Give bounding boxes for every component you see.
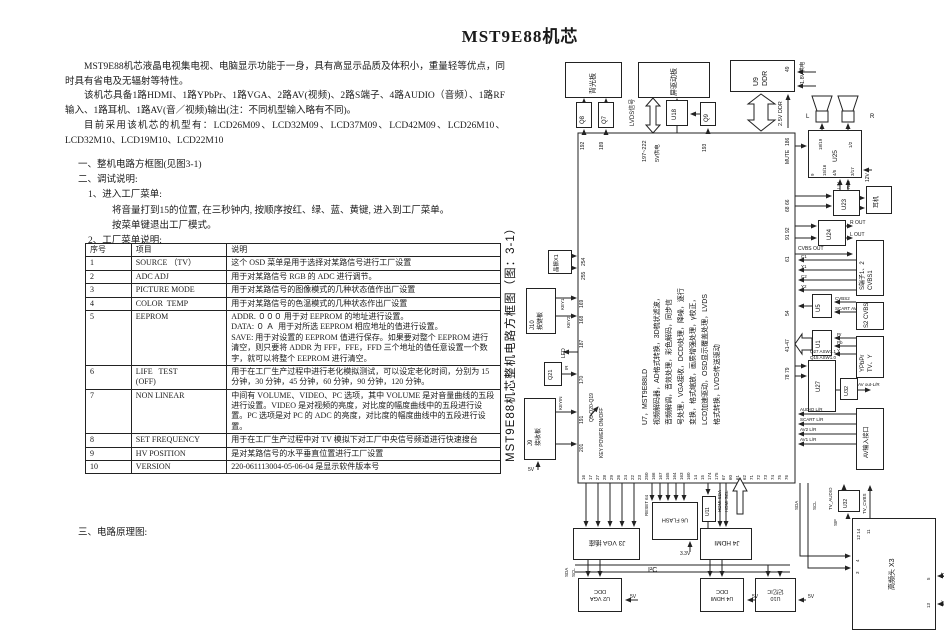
label-ddr: U9 DDR [752,71,770,86]
pin-tuner-12-14: 12 14 [856,529,861,540]
pin-u25-4-5: 4/5 [832,170,837,176]
label-y2: Y2 [801,284,807,289]
pin-label: 61 [735,475,740,480]
pin-201: 201 [580,444,586,452]
pin-tuner-11: 11 [866,529,871,534]
pin-label: 76 [784,475,789,480]
label-ir-board: J9 接收板 [528,428,543,446]
label-sif: SIF [833,519,838,526]
label-q5-q20-q19: Q5-Q20-Q19 [590,393,596,422]
pin-label: 67 [721,475,726,480]
label-r-out: R OUT [850,221,866,227]
label-y: Y [837,348,840,353]
label-rin: RIN [846,181,851,189]
label-scart-av: SCART AV [835,306,857,311]
label-12v: 12V [866,173,872,182]
pin-187: 187 [580,340,586,348]
label-5v-u10: 5V [808,595,814,601]
label-u25: U25 [832,150,840,162]
label-q8: Q8 [580,116,588,124]
label-key1: KEY1 [560,298,565,310]
pin-u25-3-17: 3/17 [850,167,855,176]
label-reset-64: RESET 64 [644,495,649,516]
label-5v-u4: 5V [752,595,758,601]
label-u18: U18 [672,109,680,120]
pin-label: 174 [707,472,712,480]
label-pin-range-197-222: 197~222 [642,140,649,162]
label-tv-audio: TV_AUDIO [828,487,833,510]
pin-label: 165 [665,472,670,480]
pin-label: 167 [658,472,663,480]
pin-54: 54 [786,310,792,316]
pin-label: 166 [651,472,656,480]
pin-label: 26 [616,475,621,480]
pin-68-66: 68 66 [786,199,792,212]
label-5v-tuner: 5V [940,600,945,606]
label-key-power-onoff: KEY POWER ON/OFF [600,408,606,458]
label-5v-u2: 5V [630,595,636,601]
pin-label: 28 [602,475,607,480]
pin-label: 29 [609,475,614,480]
pin-label: 72 [756,475,761,480]
pin-169: 169 [580,300,586,308]
label-tuner: 高频头 X3 [888,558,897,590]
pin-label: 23 [637,475,642,480]
label-j3-vga: J3 VGA 插座 [578,538,636,546]
pin-label: 16 [581,475,586,480]
label-key2: KEY2 [566,316,571,328]
pin-91-92: 91 92 [786,227,792,240]
label-u11: U11 [706,507,712,516]
document-page: MST9E88机芯 MST9E88机芯液晶电视集电视、电脑显示功能于一身，具有高… [0,0,950,635]
label-u32b: U32 [844,499,850,508]
label-j4-hdmi: J4 HDMI [706,538,748,546]
pin-tuner-13: 13 [926,603,931,608]
pin-label: 22 [630,475,635,480]
pin-u25-18-19: 18/19 [818,139,823,150]
pin-78-79: 78 79 [786,367,792,380]
label-led: LED [562,348,568,358]
pin-189: 189 [600,142,606,150]
label-q15-asw: Q15 ASW1.0 [810,355,836,360]
label-cvbs2: CVBS2 [835,296,850,301]
label-lin: LIN [836,182,841,189]
label-lvds-signal: LVDS信号 [630,99,638,126]
pin-41-47: 41-47 [786,339,792,352]
label-c1: C1 [801,254,807,259]
pin-193: 193 [703,144,709,152]
label-ir: IR [564,366,569,371]
label-u4-hdmi-ddc: U4 HDMI DDC [704,588,740,601]
label-av1-lr: AV1 L/R [800,437,816,442]
label-scl: SCL [571,568,576,577]
label-q27-asw: Q27 ASW1.1 [810,349,836,354]
pin-61: 61 [786,256,792,262]
label-s2-cvbs: S2 CVBS [864,303,872,328]
pin-170: 170 [580,376,586,384]
label-c2: C2 [801,274,807,279]
label-av-input-board: AV输入接口 [864,426,872,458]
label-crystal: 晶振X1 [554,254,561,272]
label-pr: Pr [837,332,842,337]
label-q7: Q7 [602,116,610,124]
label-u32: U32 [844,386,851,396]
label-3v3: 3.3V [680,552,690,558]
label-svideo-cvbs1: S端子1、2 CVBS1 [860,261,875,290]
label-y1: Y1 [801,264,807,269]
label-u23: U23 [842,199,850,210]
pin-label: 15 [700,475,705,480]
label-vt: VT [940,572,945,578]
label-av-out: AV out-L/R [858,382,880,387]
pin-192: 192 [581,142,587,150]
label-u5: U5 [816,304,824,312]
label-l-out: L OUT [850,233,865,239]
pin-u25-9: 9 [810,173,815,176]
label-cvbs-out: CVBS OUT [798,247,824,253]
label-mute: MUTE [786,150,792,164]
label-5v-u18: 5V供电 [655,144,662,162]
pin-label: 164 [672,472,677,480]
pin-label: 160 [686,472,691,480]
pin-label: 27 [595,475,600,480]
pin-label: 163 [679,472,684,480]
pin-label: 14 [693,475,698,480]
pin-label: 74 [770,475,775,480]
label-scart-lr: SCART L/R [800,417,823,422]
label-sda-tuner: SDA [794,501,799,510]
label-pb: Pb [837,340,843,345]
label-q21: Q21 [548,370,555,380]
pin-ddr-49: 49 [786,66,792,72]
pin-label: 250 [644,472,649,480]
label-tv-cvbs: TV_CVBS [862,493,867,514]
pin-label: 24 [623,475,628,480]
label-hdmi-scl: HDMI SCL [724,490,729,512]
label-u1: U1 [816,340,824,348]
label-speaker-r: R [870,114,874,122]
pin-label: 71 [749,475,754,480]
pin-label: 17 [588,475,593,480]
label-i2c-bus: I²C [648,566,657,575]
pin-label: 73 [763,475,768,480]
label-u6-flash: U6 FLASH [656,516,694,523]
pin-label: 175 [714,472,719,480]
wiring-svg [0,0,950,635]
label-u2-vga-ddc: U2 VGA DDC [582,588,618,601]
pin-u25-15-16: 15/16 [822,165,827,176]
pin-label: 60 [728,475,733,480]
label-u10-eeprom: U10 记忆IC [759,588,792,601]
label-keypad-board: J10 按键板 [530,312,545,330]
label-backlight: 背光板 [589,73,598,94]
label-hdmi-sda: HDMI SDA [717,490,722,512]
label-audio-lr: AUDIO L/R [800,407,823,412]
label-panel-driver: 屏驱动板 [670,68,679,96]
label-speaker-l: L [806,114,809,122]
label-5v-j9: 5V [528,468,534,474]
pin-254: 254 [582,258,588,266]
label-q9: Q9 [704,114,712,122]
label-av2-lr: AV2 L/R [800,427,816,432]
pin-u25-1-2: 1/2 [848,142,853,148]
pin-tuner-5: 5 [926,577,931,580]
pin-label: 62 [742,475,747,480]
label-1v8-supply: 1.8V供电 [800,62,807,84]
pin-tuner-3: 3 [855,571,860,574]
label-sda: SDA [564,568,569,577]
label-scl-tuner: SCL [812,501,817,510]
pin-tuner-4: 4 [855,559,860,562]
diagram-caption: MST9E88机芯整机电路方框图（图：3-1） [502,222,518,462]
label-2v5-ddr: 2.5V DDR [778,101,785,126]
label-ypbpr: YPbPr TV、Y [860,354,875,372]
pin-label: 75 [777,475,782,480]
pin-191: 191 [580,416,586,424]
pin-168: 168 [580,316,586,324]
label-keyin: KEYIN [558,396,563,410]
pin-255: 255 [582,272,588,280]
label-headphone: 耳机 [874,196,882,208]
pin-186: 186 [786,138,792,146]
label-u27: U27 [816,381,824,392]
chip-u7-mst9e88ld-text: U7，MST9E88LD 视频解码器，AD格式转换，3D梳状滤波， 音频解调，音… [640,288,724,425]
label-u24: U24 [827,229,835,240]
